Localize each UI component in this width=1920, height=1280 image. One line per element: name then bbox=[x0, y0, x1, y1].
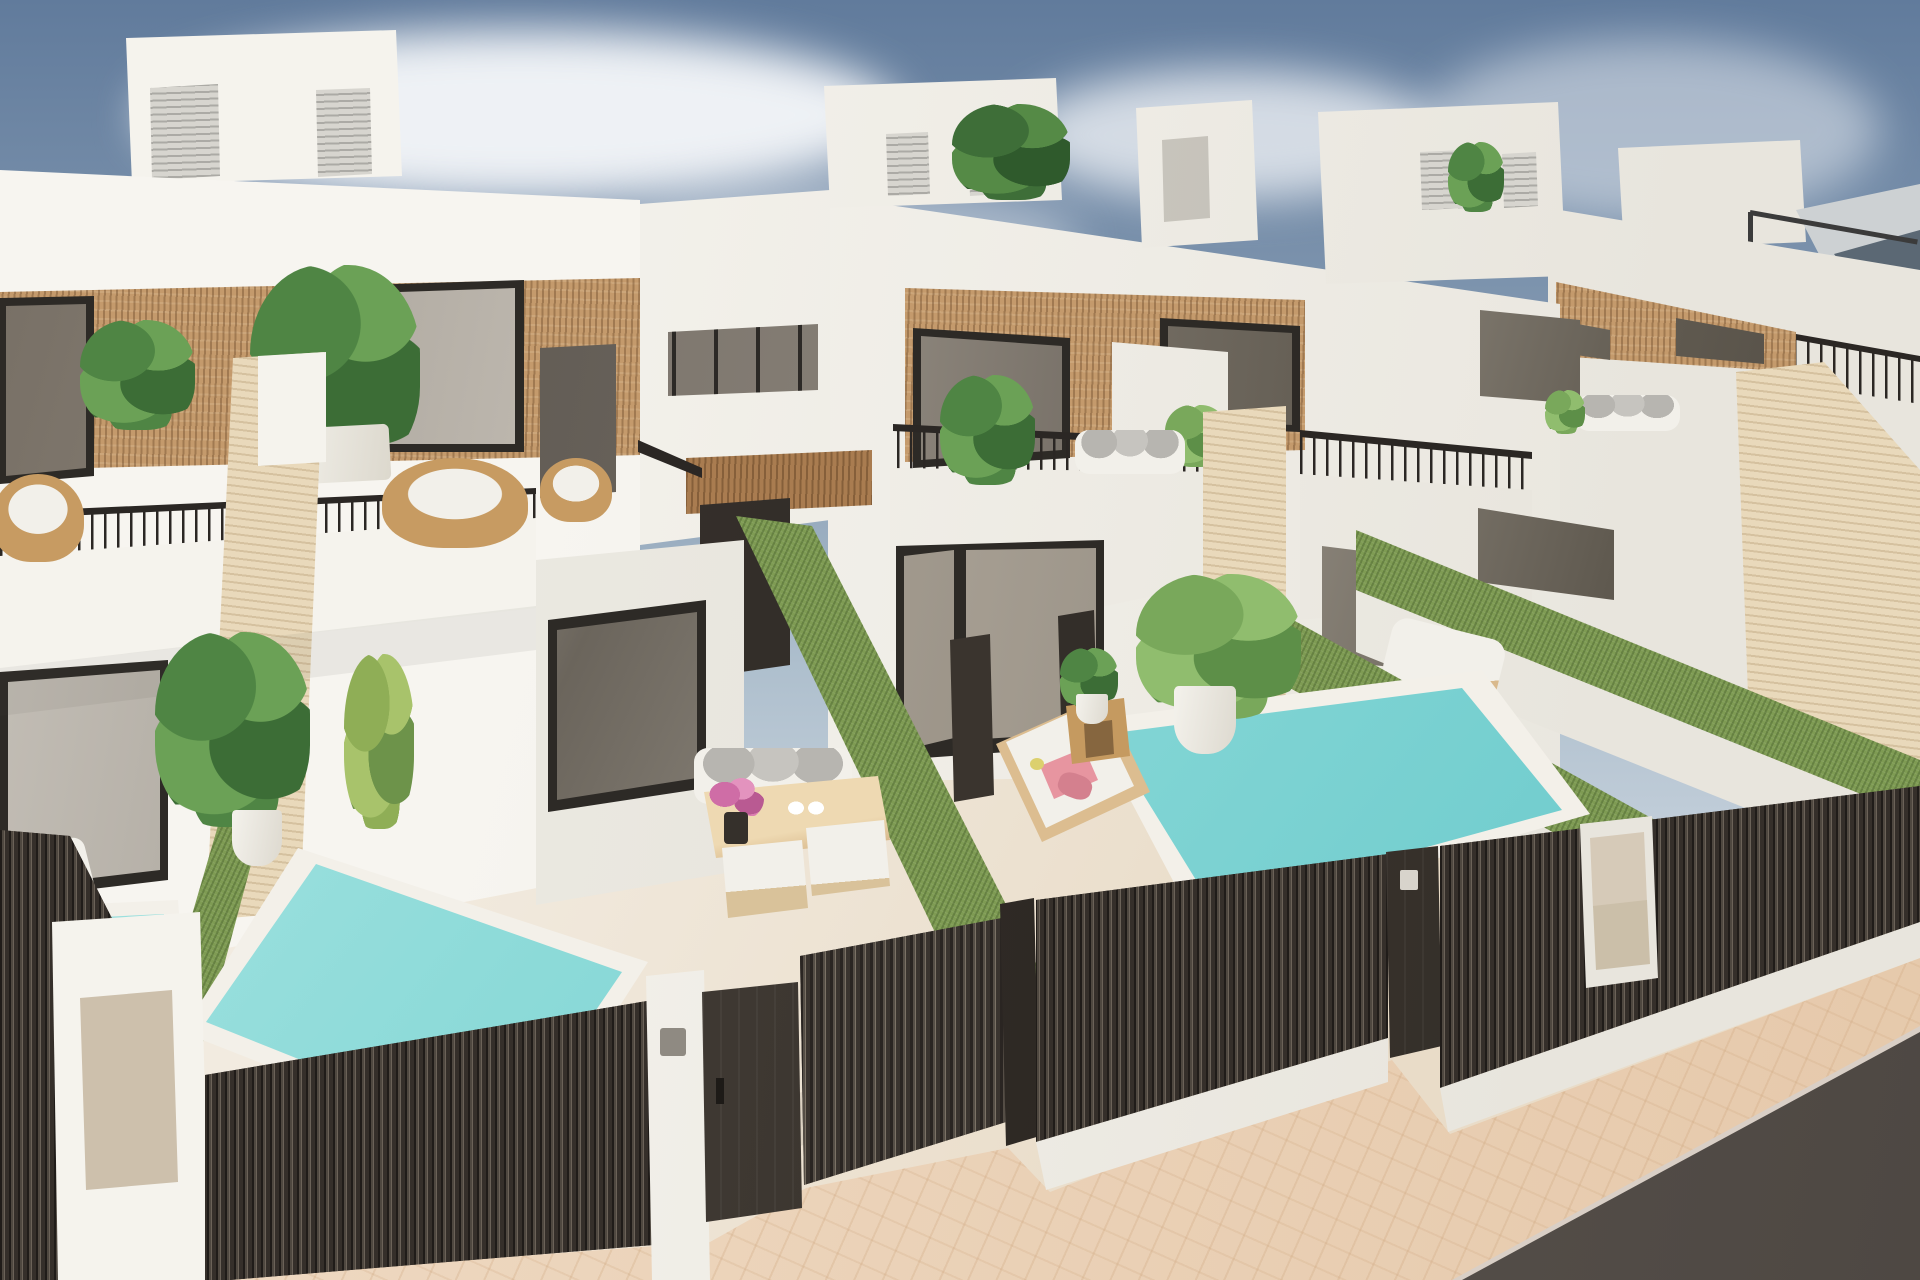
rattan-chair bbox=[540, 458, 612, 522]
balcony-plant bbox=[940, 375, 1035, 485]
terrace-sofa bbox=[1575, 395, 1680, 431]
terrace-plant bbox=[80, 320, 195, 430]
rooftop-plant bbox=[1448, 142, 1504, 212]
rooftop-plant bbox=[952, 104, 1070, 200]
plant-pot bbox=[1076, 694, 1108, 724]
balcony-sofa bbox=[1075, 430, 1185, 474]
architectural-render-scene bbox=[0, 0, 1920, 1280]
sun-hat bbox=[1030, 758, 1044, 770]
gate-keypad bbox=[660, 1028, 686, 1056]
rattan-chair bbox=[382, 458, 528, 548]
potted-plant bbox=[155, 632, 310, 827]
vase bbox=[724, 812, 748, 844]
plant-pot bbox=[1174, 686, 1236, 754]
gate-keypad bbox=[1400, 870, 1418, 890]
terrace-plant bbox=[1545, 390, 1585, 434]
plant-pot bbox=[232, 810, 282, 866]
coffee-cups bbox=[786, 800, 826, 816]
gate-handle bbox=[716, 1078, 724, 1104]
rattan-chair bbox=[0, 474, 84, 562]
garden-fern bbox=[344, 654, 414, 829]
